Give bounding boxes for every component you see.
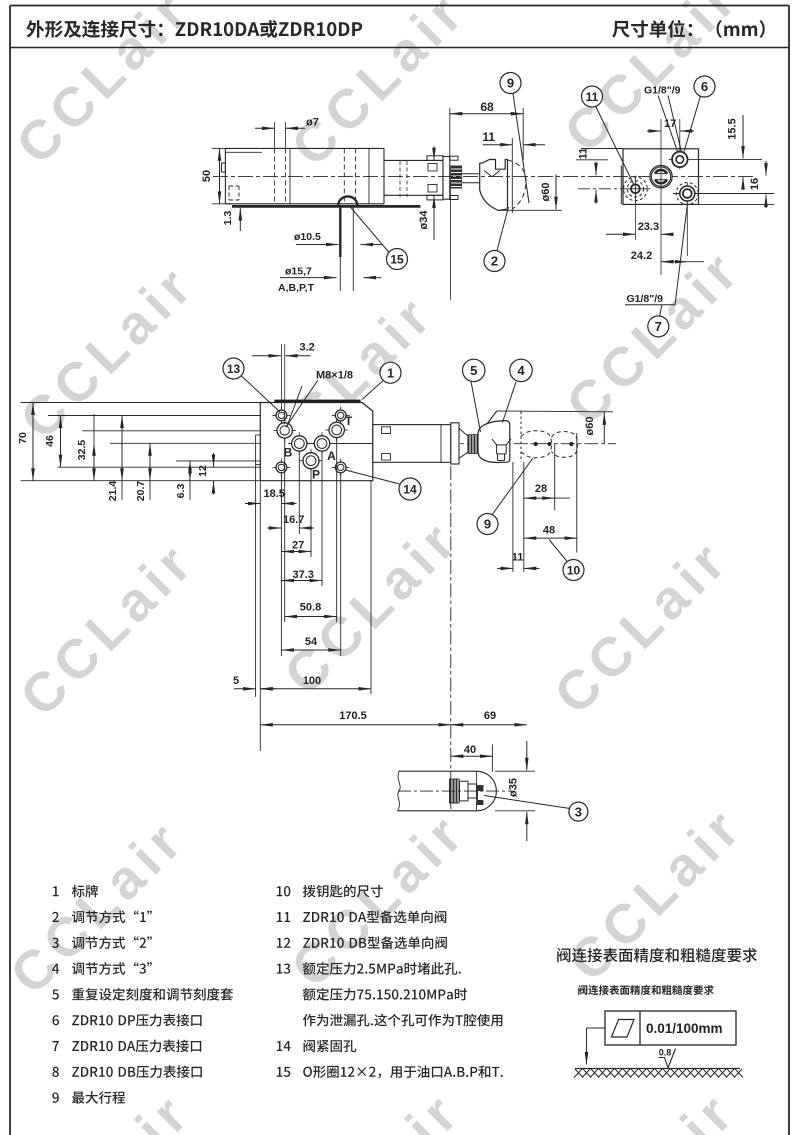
svg-text:54: 54	[305, 636, 318, 648]
svg-text:170.5: 170.5	[339, 710, 367, 722]
svg-text:13: 13	[227, 362, 241, 376]
svg-text:12: 12	[197, 465, 209, 477]
svg-text:68: 68	[480, 100, 494, 114]
svg-text:40: 40	[464, 744, 476, 756]
svg-text:70: 70	[17, 432, 29, 444]
svg-text:69: 69	[484, 710, 496, 722]
svg-text:21.4: 21.4	[107, 481, 119, 502]
svg-text:11: 11	[586, 90, 599, 104]
svg-text:32.5: 32.5	[76, 440, 88, 461]
svg-text:15.5: 15.5	[727, 118, 739, 139]
svg-text:G1/8"/9: G1/8"/9	[627, 293, 664, 305]
svg-text:5: 5	[470, 363, 477, 378]
svg-text:2: 2	[491, 254, 498, 269]
svg-text:18.5: 18.5	[264, 488, 285, 500]
svg-text:50.8: 50.8	[300, 602, 321, 614]
svg-text:6: 6	[701, 79, 708, 94]
svg-text:27: 27	[292, 540, 304, 552]
svg-text:ø7: ø7	[306, 117, 319, 129]
svg-text:14: 14	[403, 482, 417, 496]
svg-text:ø34: ø34	[418, 210, 430, 230]
svg-text:11: 11	[578, 148, 590, 160]
svg-text:1.3: 1.3	[222, 211, 234, 226]
svg-text:ø15,7: ø15,7	[285, 266, 312, 278]
svg-text:100: 100	[303, 675, 321, 687]
svg-text:6.3: 6.3	[175, 484, 187, 499]
svg-text:1: 1	[387, 365, 394, 380]
svg-text:11: 11	[482, 130, 495, 144]
svg-text:50: 50	[201, 170, 213, 182]
svg-text:28: 28	[535, 483, 547, 495]
svg-text:4: 4	[517, 363, 525, 378]
svg-text:9: 9	[507, 76, 514, 91]
svg-text:48: 48	[543, 525, 555, 537]
svg-text:ø60: ø60	[540, 183, 552, 202]
svg-text:20.7: 20.7	[135, 481, 147, 502]
svg-text:16: 16	[749, 178, 761, 190]
svg-text:P: P	[312, 468, 320, 482]
svg-text:A,B,P,T: A,B,P,T	[278, 282, 315, 294]
svg-text:11: 11	[512, 552, 524, 564]
svg-text:G1/8"/9: G1/8"/9	[644, 85, 681, 97]
svg-text:24.2: 24.2	[631, 250, 652, 262]
svg-text:ø10.5: ø10.5	[294, 231, 321, 243]
svg-text:5: 5	[233, 675, 239, 687]
svg-text:0.01/100mm: 0.01/100mm	[646, 1021, 723, 1036]
svg-text:7: 7	[655, 319, 662, 334]
svg-text:M8×1/8: M8×1/8	[316, 370, 353, 382]
svg-text:A: A	[327, 449, 336, 463]
svg-text:23.3: 23.3	[638, 221, 659, 233]
svg-text:3: 3	[575, 804, 582, 819]
svg-text:ø35: ø35	[508, 778, 520, 797]
svg-text:37.3: 37.3	[293, 569, 314, 581]
svg-text:15: 15	[390, 252, 404, 266]
svg-text:ø60: ø60	[584, 417, 596, 436]
svg-text:10: 10	[567, 563, 581, 577]
svg-text:9: 9	[484, 517, 491, 532]
svg-text:0.8: 0.8	[659, 1048, 672, 1058]
svg-text:46: 46	[44, 435, 56, 447]
svg-text:16.7: 16.7	[283, 514, 304, 526]
svg-text:3.2: 3.2	[300, 342, 315, 354]
svg-text:T: T	[345, 414, 353, 428]
